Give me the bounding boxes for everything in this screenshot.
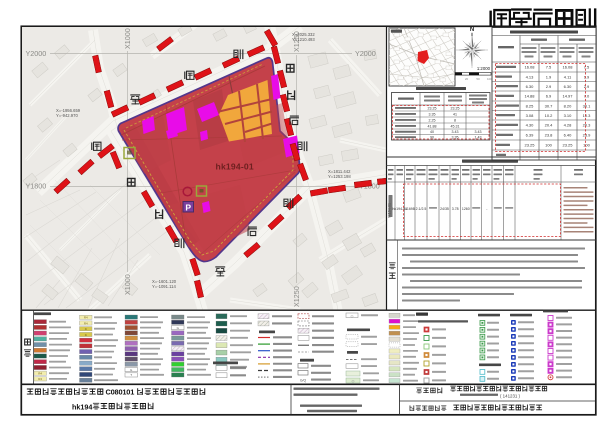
svg-text:R4: R4 [84,321,88,325]
svg-text:C080101: C080101 [106,388,135,397]
svg-text:1:2000: 1:2000 [477,66,491,71]
svg-text:X1000: X1000 [123,28,132,49]
svg-text:Y=-942.970: Y=-942.970 [56,113,78,118]
svg-text:41: 41 [453,112,457,116]
svg-text:6.30: 6.30 [526,84,535,89]
svg-text:6.9: 6.9 [546,94,552,99]
svg-text:( 141231 ): ( 141231 ) [500,393,521,398]
svg-text:23.8: 23.8 [545,133,554,138]
svg-text:Y2000: Y2000 [355,49,376,58]
svg-text:40: 40 [430,130,434,134]
svg-text:30.1: 30.1 [583,103,592,108]
svg-text:8.25: 8.25 [526,103,535,108]
svg-text:3.43: 3.43 [475,130,482,134]
svg-text:23.25: 23.25 [524,143,535,148]
svg-text:4.30: 4.30 [526,123,535,128]
svg-text:3.35: 3.35 [429,112,436,116]
svg-text:23.25: 23.25 [562,143,573,148]
svg-text:( ): ( ) [351,314,354,318]
svg-text:45.31: 45.31 [451,124,460,128]
svg-text:Y=-1091.114: Y=-1091.114 [152,284,176,289]
svg-text:G/Q: G/Q [300,379,307,383]
svg-text:hk194: hk194 [72,403,92,412]
svg-text:3.08: 3.08 [526,113,535,118]
svg-text:14.88: 14.88 [524,94,535,99]
svg-text:T: T [130,373,132,377]
svg-text:2.9: 2.9 [546,84,552,89]
svg-text:2.25: 2.25 [429,118,436,122]
svg-text:6.40: 6.40 [564,133,573,138]
svg-text:20: 20 [465,77,469,81]
svg-text:24/35: 24/35 [440,207,449,211]
svg-text:2.1/2.5: 2.1/2.5 [416,207,427,211]
svg-text:30.7: 30.7 [545,103,554,108]
svg-text:hk194-01: hk194-01 [216,162,254,172]
svg-text:Y2000: Y2000 [26,49,47,58]
svg-text:14.97: 14.97 [562,94,573,99]
svg-text:4.11: 4.11 [564,74,572,79]
svg-text:10.3: 10.3 [583,113,592,118]
svg-text:16.08: 16.08 [524,65,535,70]
svg-text:R4: R4 [84,316,88,320]
svg-text:100: 100 [583,143,590,148]
svg-text:100: 100 [545,143,552,148]
svg-text:Y=1253.198: Y=1253.198 [328,174,351,179]
svg-text:3.10: 3.10 [564,113,573,118]
svg-text:16.08: 16.08 [562,65,573,70]
svg-text:7.0: 7.0 [584,94,590,99]
svg-text:23.9: 23.9 [583,133,592,138]
svg-text:41.88: 41.88 [428,124,437,128]
svg-text:10.2: 10.2 [545,113,554,118]
svg-text:P: P [185,202,191,212]
svg-text:R4: R4 [38,372,42,376]
svg-text:50: 50 [476,77,480,81]
svg-text:41698: 41698 [405,207,415,211]
svg-text:N: N [470,27,474,33]
svg-text:Y1800: Y1800 [26,182,47,191]
svg-text:3.43: 3.43 [452,130,459,134]
svg-text:( ): ( ) [352,379,355,383]
svg-text:7.5: 7.5 [584,65,590,70]
svg-text:100: 100 [487,77,492,81]
svg-text:23.25: 23.25 [451,106,460,110]
svg-text:6.30: 6.30 [564,84,573,89]
svg-text:1260: 1260 [462,207,470,211]
svg-text:1.9: 1.9 [546,74,552,79]
svg-text:20.4: 20.4 [545,123,554,128]
svg-text:X1250: X1250 [292,286,301,307]
svg-text:8.20: 8.20 [564,103,573,108]
svg-text:X1000: X1000 [123,274,132,295]
svg-text:6.39: 6.39 [526,133,535,138]
svg-text:2.9: 2.9 [584,84,590,89]
svg-text:4.13: 4.13 [526,74,535,79]
svg-text:8: 8 [454,118,456,122]
svg-text:Y=1210.493: Y=1210.493 [292,37,315,42]
svg-text:4.28: 4.28 [564,123,573,128]
svg-text:R4: R4 [38,377,42,381]
svg-text:1.9: 1.9 [584,74,590,79]
svg-text:20.3: 20.3 [583,123,592,128]
svg-text:7.5: 7.5 [546,65,552,70]
svg-text:23.25: 23.25 [428,106,437,110]
svg-text:3.78: 3.78 [452,207,459,211]
